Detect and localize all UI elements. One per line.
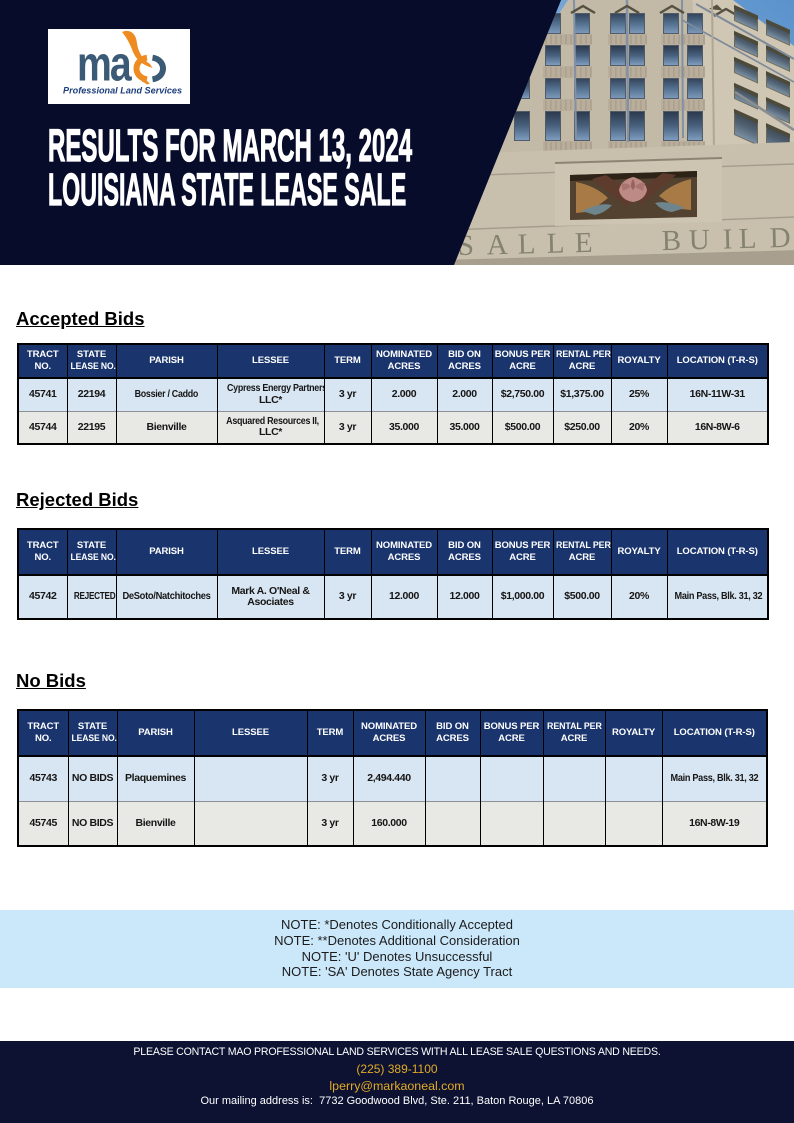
svg-text:I: I bbox=[722, 223, 732, 255]
svg-text:U: U bbox=[688, 224, 710, 257]
svg-text:A: A bbox=[486, 229, 508, 262]
svg-text:L: L bbox=[738, 223, 756, 255]
svg-text:L: L bbox=[546, 227, 564, 259]
svg-text:E: E bbox=[574, 227, 592, 259]
svg-text:Professional Land Services: Professional Land Services bbox=[63, 85, 182, 95]
svg-text:B: B bbox=[661, 225, 681, 257]
svg-text:D: D bbox=[769, 222, 791, 255]
svg-text:L: L bbox=[517, 228, 535, 260]
svg-text:ma: ma bbox=[77, 37, 132, 91]
